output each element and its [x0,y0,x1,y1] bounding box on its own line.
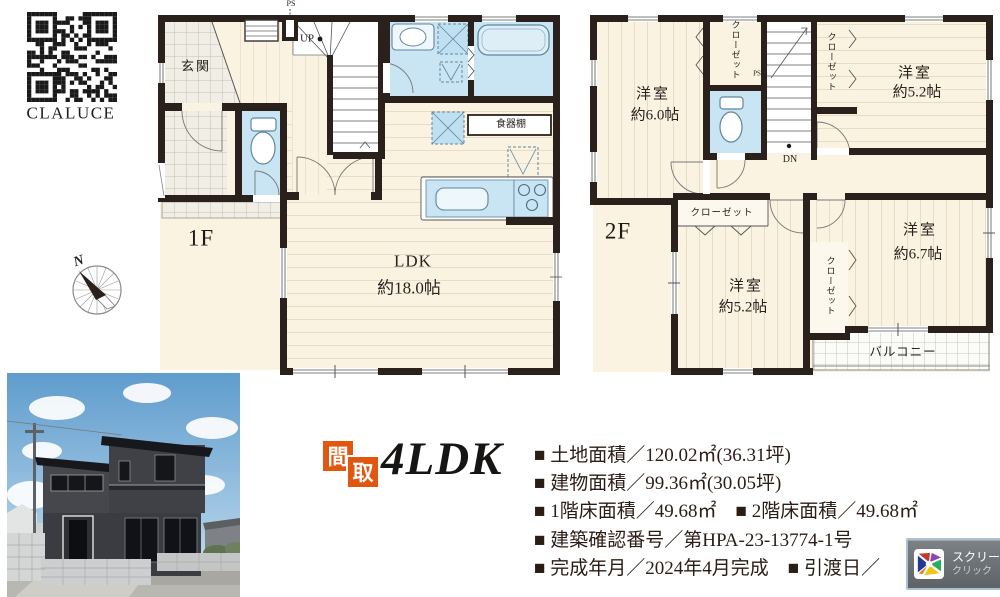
ps-label-2f: PS [753,71,761,78]
floor-label-1f: 1F [188,227,214,250]
stairs-dn-label: DN [783,155,797,165]
room-label-nw: 洋室 [636,88,670,103]
closet-label-se: クローゼット [826,256,835,316]
house-photo [7,373,240,597]
photo-app-icon [914,549,944,579]
floorplan-2f [583,12,995,384]
toast-title: スクリー [952,550,1000,565]
ps-label-1f: PS [287,0,296,8]
room-size-ne: 約5.2帖 [893,86,942,101]
room-label-se: 洋室 [903,224,937,239]
cupboard-label: 食器棚 [496,120,526,130]
qr-caption: CLALUCE [27,105,116,122]
detail-building-area: ■ 建物面積／99.36㎡(30.05坪) [534,470,1000,498]
plan-type-label: 4LDK [381,432,503,486]
room-size-ldk: 約18.0帖 [377,280,441,297]
badge-kanji-2: 取 [346,455,380,489]
qr-code-image [27,12,117,102]
floorplan-sheet: CLALUCE [0,0,1000,597]
floor-label-2f: 2F [605,220,631,243]
room-label-sw: 洋室 [729,280,763,295]
room-size-nw: 約6.0帖 [631,109,680,124]
room-size-se: 約6.7帖 [894,248,943,263]
screenshot-toast[interactable]: スクリー クリック [906,538,1000,590]
room-size-sw: 約5.2帖 [719,301,768,316]
room-label-ne: 洋室 [898,67,932,82]
balcony-label: バルコニー [869,346,936,359]
detail-land-area: ■ 土地面積／120.02㎡(36.31坪) [534,442,1000,470]
closet-label-right: クローゼット [827,32,836,92]
floorplan-1f [150,8,562,380]
closet-label-sw: クローゼット [690,209,753,219]
detail-floor-areas: ■ 1階床面積／49.68㎡ ■ 2階床面積／49.68㎡ [534,498,1000,526]
closet-label-left: クローゼット [731,20,740,80]
room-label-genkan: 玄関 [181,60,211,73]
room-label-ldk: LDK [394,253,432,270]
toast-subtitle: クリック [952,565,1000,578]
stairs-up-label: UP [300,34,314,45]
